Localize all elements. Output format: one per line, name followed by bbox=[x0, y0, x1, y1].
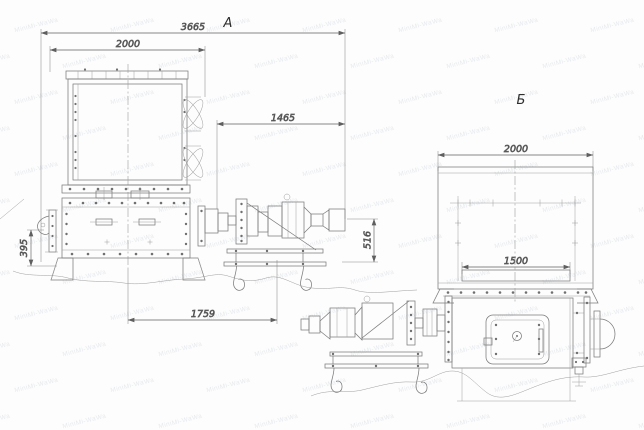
view-a-label: А bbox=[223, 16, 233, 31]
agitator-paddles-a bbox=[180, 97, 207, 180]
break-line-b bbox=[311, 366, 644, 397]
dim-a-base-length-value: 1759 bbox=[191, 309, 215, 320]
dim-a-drive-height-value: 516 bbox=[363, 231, 374, 249]
dim-a-drive-length-value: 1465 bbox=[271, 113, 295, 124]
dim-b-opening-width-value: 1500 bbox=[504, 256, 528, 267]
dim-b-opening-width: 1500 bbox=[462, 256, 570, 274]
dim-a-overall: 3665 bbox=[41, 22, 345, 262]
view-a: А 3665 2000 1465 bbox=[0, 16, 417, 324]
mixer-body-b bbox=[433, 160, 598, 303]
door-handle bbox=[539, 329, 543, 352]
dim-a-base-length: 1759 bbox=[128, 260, 277, 324]
dim-a-body-width-value: 2000 bbox=[116, 39, 140, 50]
support-frame-a bbox=[224, 249, 326, 290]
dim-b-body-width-value: 2000 bbox=[504, 144, 528, 155]
view-b-label: Б bbox=[517, 93, 526, 108]
dim-a-trough-height-value: 395 bbox=[19, 239, 30, 257]
drive-assembly-b bbox=[301, 296, 445, 345]
dim-a-drive-length: 1465 bbox=[217, 113, 345, 209]
dim-a-overall-value: 3665 bbox=[181, 22, 205, 33]
dim-a-trough-height: 395 bbox=[19, 230, 57, 266]
anchor-hook bbox=[301, 266, 312, 290]
view-b: Б 2000 1500 bbox=[301, 93, 644, 401]
drawing-sheet: MiniMi-WaWaMiniMi-WaWaMiniMi-WaWaMiniMi-… bbox=[0, 0, 644, 430]
technical-drawing-canvas: А 3665 2000 1465 bbox=[0, 0, 644, 430]
anchor-hook bbox=[416, 368, 427, 393]
side-mechanism-b bbox=[572, 297, 615, 386]
dim-a-drive-height: 516 bbox=[342, 219, 378, 262]
anchor-hook bbox=[331, 368, 342, 392]
mixer-body-a bbox=[62, 64, 190, 268]
drive-assembly-a bbox=[198, 194, 345, 250]
trough-b bbox=[445, 296, 576, 401]
support-frame-b bbox=[325, 352, 428, 393]
break-line-a bbox=[0, 199, 417, 292]
left-bracket-a bbox=[37, 210, 58, 252]
